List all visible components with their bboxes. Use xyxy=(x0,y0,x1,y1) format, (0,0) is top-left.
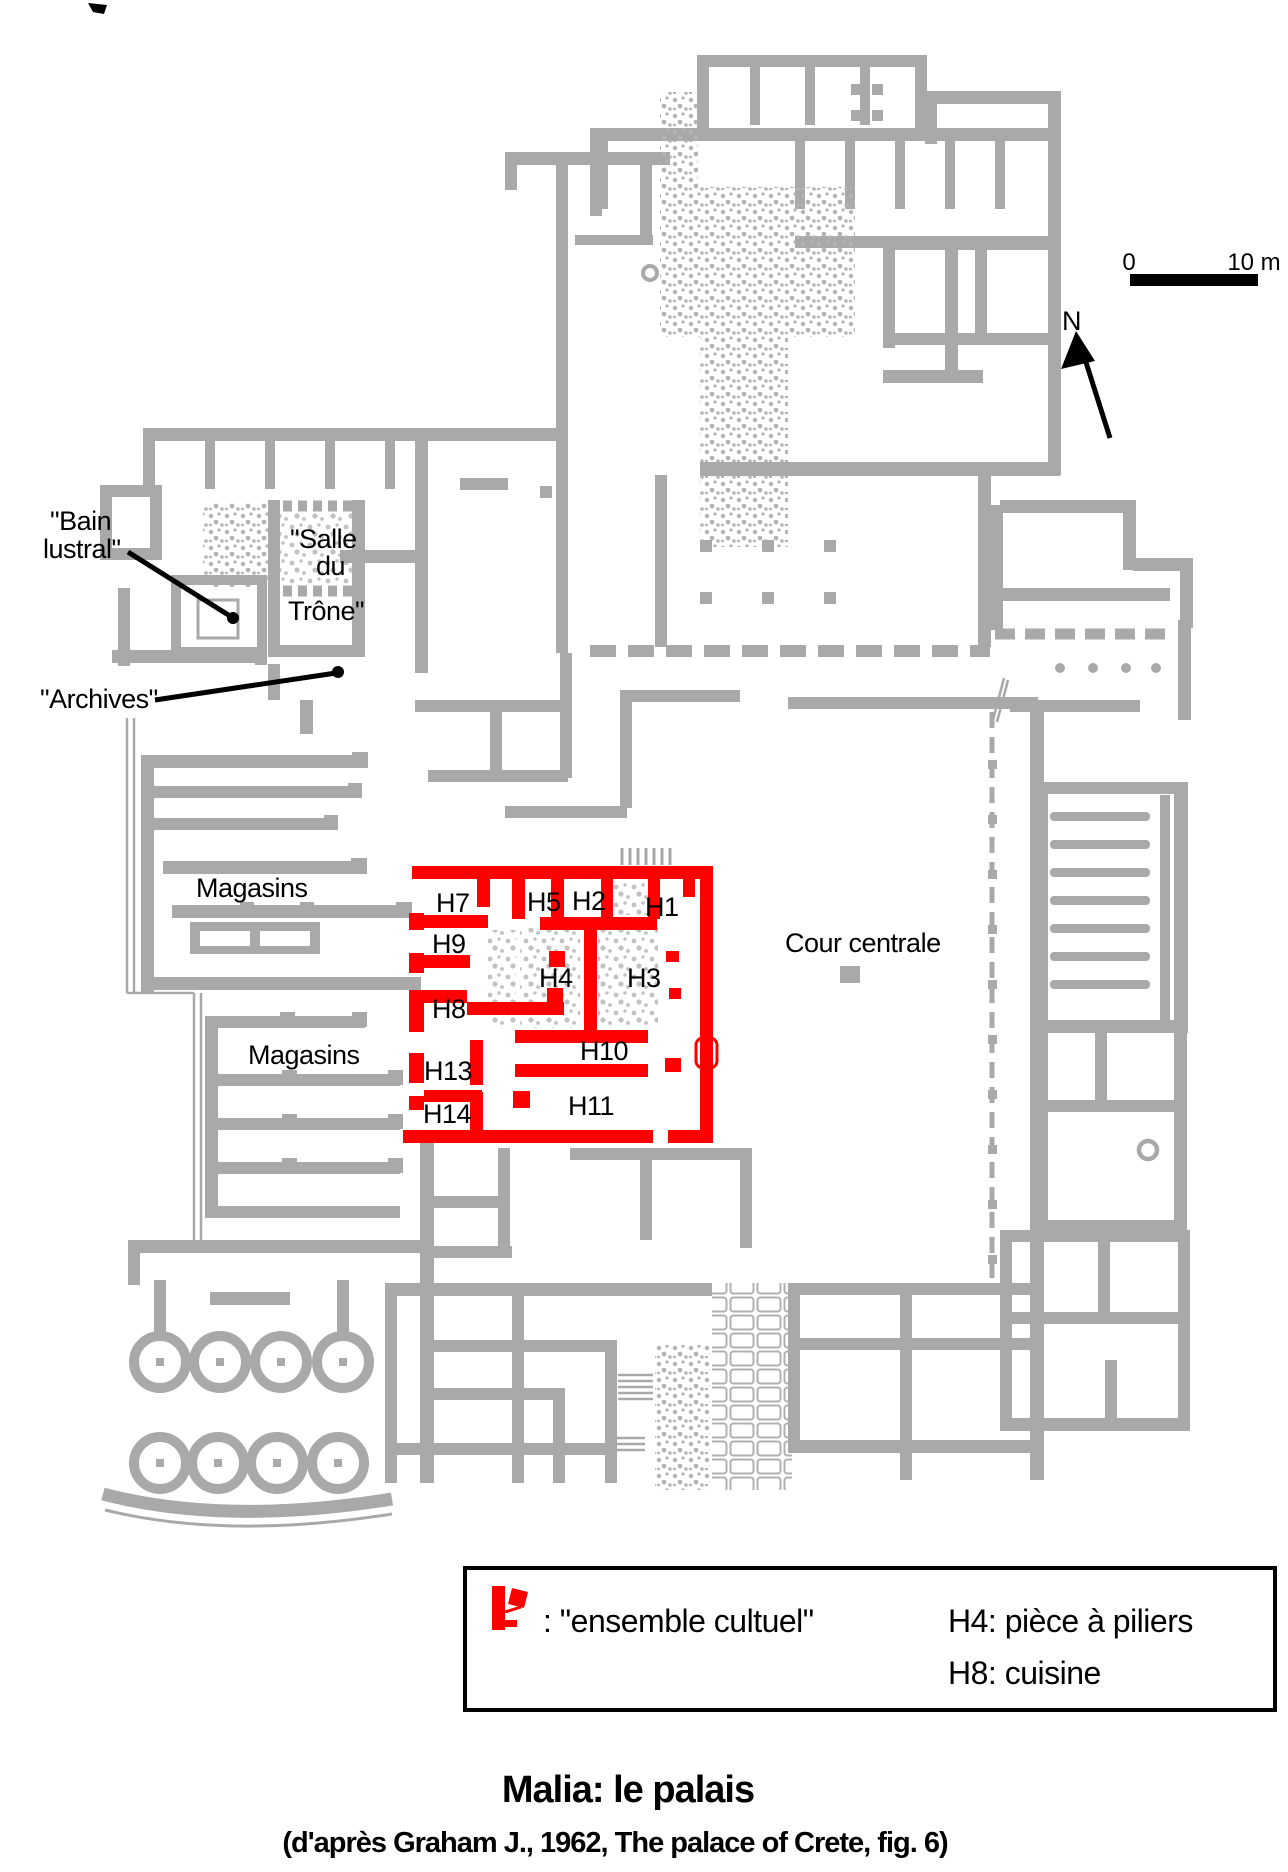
legend: : "ensemble cultuel" H4: pièce à piliers… xyxy=(465,1568,1275,1710)
salle-du-trone-label-line2: du xyxy=(316,551,345,581)
scale-bar-rule xyxy=(1130,274,1258,286)
magasins-lower-label: Magasins xyxy=(248,1040,360,1070)
figure-malia-palace-plan: "Bain lustral" "Salle du Trône" "Archive… xyxy=(0,0,1288,1872)
silos xyxy=(103,1280,392,1526)
legend-h4-note: H4: pièce à piliers xyxy=(948,1603,1193,1639)
figure-subtitle: (d'après Graham J., 1962, The palace of … xyxy=(282,1827,948,1859)
northwest-arm-walls xyxy=(415,152,670,653)
scale-end-label: 10 m xyxy=(1227,249,1280,276)
scale-start-label: 0 xyxy=(1122,249,1135,276)
north-paved-passage xyxy=(660,92,855,547)
south-quarter-walls xyxy=(385,1140,1033,1490)
cour-centrale-label: Cour centrale xyxy=(785,928,941,958)
room-label-h8: H8 xyxy=(432,994,466,1024)
pillared-hall-walls xyxy=(590,475,991,651)
east-annex-walls xyxy=(990,500,1193,722)
archives-label: "Archives" xyxy=(40,684,158,714)
west-magazines-upper xyxy=(127,718,421,993)
north-compass: N xyxy=(1061,306,1110,438)
magasins-upper-label: Magasins xyxy=(196,873,308,903)
room-label-h1: H1 xyxy=(645,892,679,922)
caption: Malia: le palais (d'après Graham J., 196… xyxy=(282,1769,948,1859)
bain-lustral-label-line2: lustral" xyxy=(43,534,121,564)
room-label-h5: H5 xyxy=(527,887,561,917)
west-magazines-lower xyxy=(127,993,420,1285)
scale-bar: 0 10 m xyxy=(1122,249,1280,286)
bain-lustral-label-line1: "Bain xyxy=(50,506,111,536)
room-label-h10: H10 xyxy=(580,1036,628,1066)
legend-h8-note: H8: cuisine xyxy=(948,1655,1101,1691)
room-label-h14: H14 xyxy=(423,1099,472,1129)
legend-ensemble-cultuel-label: : "ensemble cultuel" xyxy=(543,1603,814,1639)
salle-du-trone-label-line1: "Salle xyxy=(290,524,357,554)
room-label-h3: H3 xyxy=(627,963,661,993)
room-label-h13: H13 xyxy=(424,1056,472,1086)
room-label-h4: H4 xyxy=(539,963,573,993)
room-label-h2: H2 xyxy=(572,886,606,916)
room-label-h7: H7 xyxy=(436,888,470,918)
north-arrow-head xyxy=(1061,331,1095,369)
legend-box xyxy=(465,1568,1275,1710)
palace-plan-drawing: "Bain lustral" "Salle du Trône" "Archive… xyxy=(0,0,1288,1872)
scan-artifact-mark xyxy=(88,3,107,14)
east-magazines-comb xyxy=(1035,782,1188,1033)
north-arrow-icon xyxy=(1084,356,1110,438)
legend-red-marker-icon xyxy=(492,1586,528,1630)
mid-west-rooms xyxy=(415,653,740,818)
salle-du-trone-label-line3: Trône" xyxy=(288,596,364,626)
east-wing-south-rooms xyxy=(1000,1033,1190,1431)
north-label: N xyxy=(1062,306,1081,336)
room-label-h9: H9 xyxy=(432,929,466,959)
room-label-h11: H11 xyxy=(568,1091,614,1121)
figure-title: Malia: le palais xyxy=(502,1769,754,1811)
